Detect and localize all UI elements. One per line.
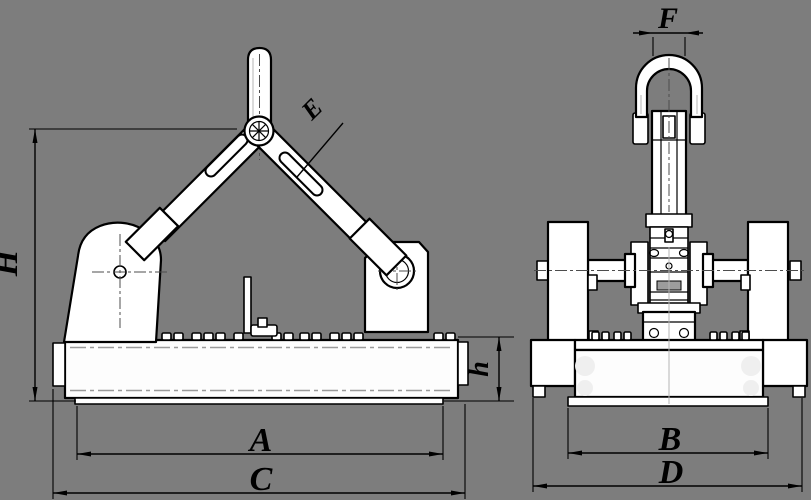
bolt-head <box>234 333 243 340</box>
bolt-head <box>216 333 225 340</box>
dim-label-D: D <box>658 454 684 491</box>
bolt-head <box>710 332 717 340</box>
bolt-head <box>342 333 351 340</box>
bolt-head <box>300 333 309 340</box>
bolt-head <box>742 332 749 340</box>
dim-label-F: F <box>657 2 678 35</box>
bolt-head <box>446 333 455 340</box>
bolt-head <box>434 333 443 340</box>
bolt-head <box>174 333 183 340</box>
side-pole-shoe <box>568 397 768 406</box>
bolt-head <box>354 333 363 340</box>
dim-label-C: C <box>250 461 273 498</box>
bolt-head <box>204 333 213 340</box>
bolt-head <box>592 332 599 340</box>
side-base-cap-left <box>531 340 575 386</box>
dim-label-H: H <box>0 248 25 277</box>
bolt-head <box>614 332 621 340</box>
arm-block-left <box>548 222 588 342</box>
base-end-cap-left <box>53 343 65 386</box>
magnet-base <box>53 340 468 404</box>
bolt-head <box>284 333 293 340</box>
side-base-cap-right <box>763 340 807 386</box>
bolt-head <box>192 333 201 340</box>
bolt-head <box>624 332 631 340</box>
bolt-head <box>732 332 739 340</box>
dim-label-B: B <box>658 421 682 458</box>
bolt-head <box>312 333 321 340</box>
central-pivot <box>245 117 274 146</box>
dim-label-h: h <box>464 361 495 377</box>
bolt-head <box>602 332 609 340</box>
arm-block-right <box>748 222 788 342</box>
bolt-head <box>720 332 727 340</box>
paper-edge-strip <box>0 500 811 504</box>
technical-drawing: H h A C <box>0 0 811 504</box>
dim-label-A: A <box>248 422 273 459</box>
bolt-head <box>330 333 339 340</box>
drawing-canvas: H h A C <box>0 0 811 504</box>
base-pole-shoe <box>75 398 443 404</box>
bolt-head <box>162 333 171 340</box>
